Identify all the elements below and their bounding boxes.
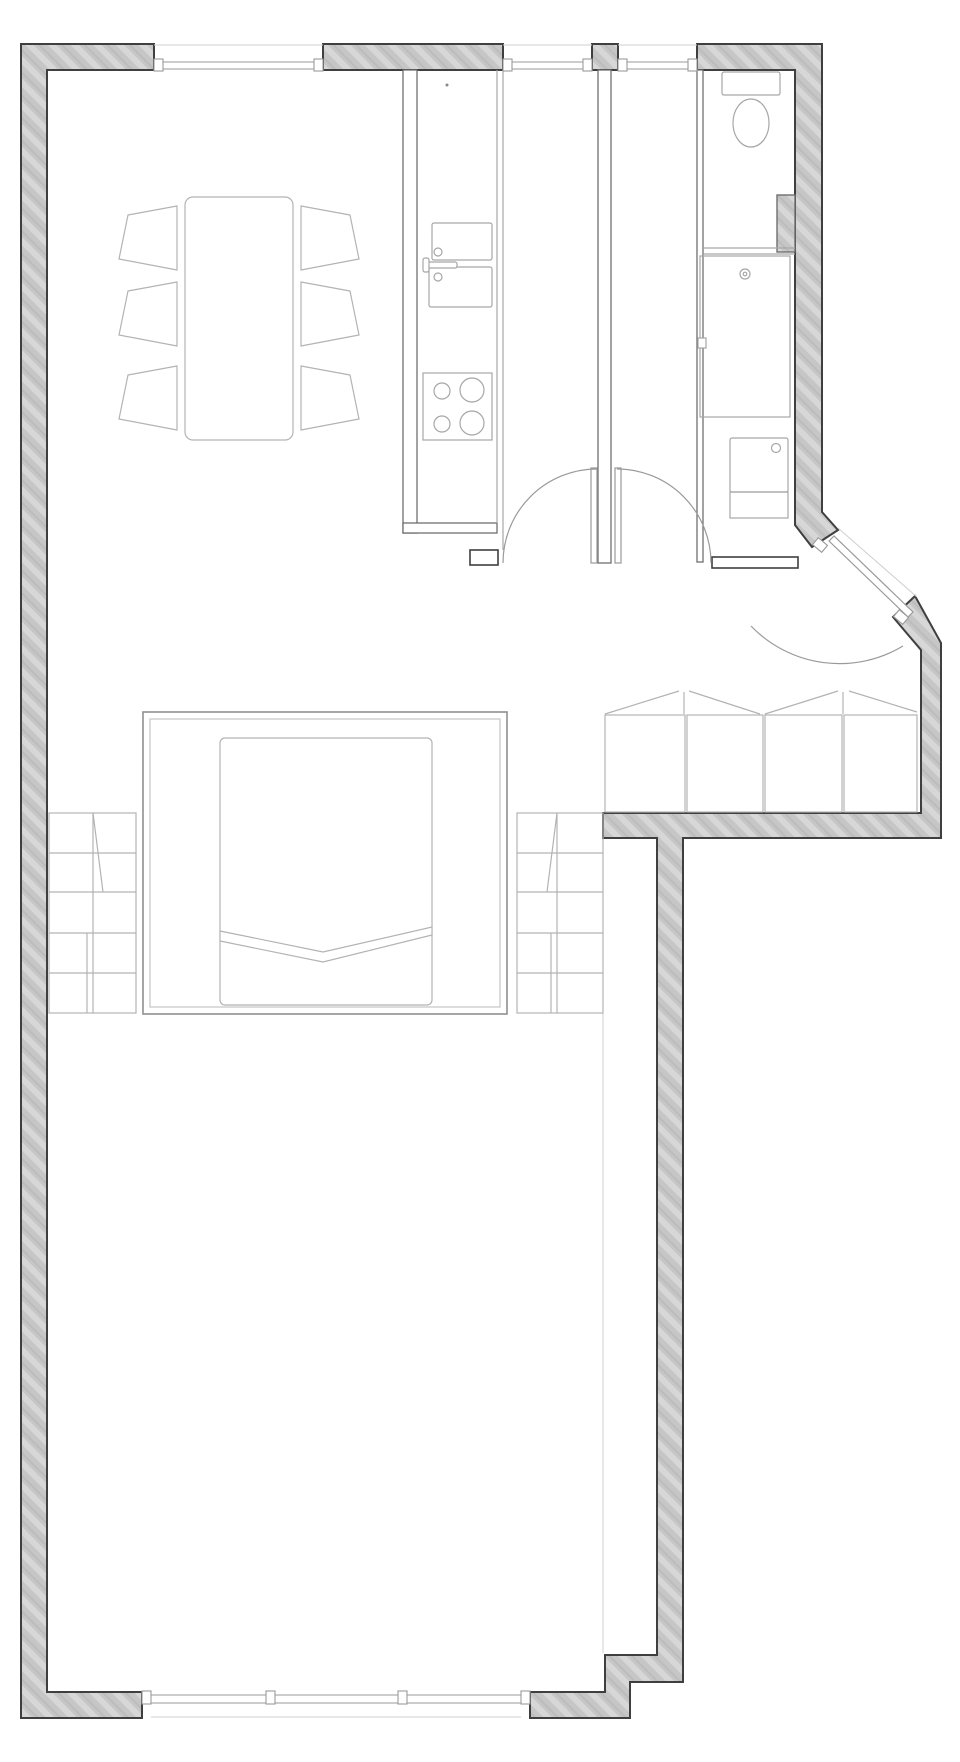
floor-plan-page	[0, 0, 960, 1762]
entry-door-arc	[751, 626, 903, 664]
faucet-handle	[425, 262, 457, 268]
bench-section	[765, 715, 842, 812]
dining-table	[185, 197, 293, 440]
bathroom	[698, 72, 795, 518]
window-top-left	[154, 59, 323, 71]
bench-section	[844, 715, 917, 812]
bench-cushions	[605, 691, 917, 714]
dining-chair	[301, 206, 359, 270]
wall-pier-top-middle	[323, 44, 503, 70]
kitchen-door-arc	[503, 469, 597, 563]
shower	[698, 256, 790, 417]
entry-door	[751, 528, 917, 664]
balcony-bench	[605, 691, 917, 812]
washing-machine	[730, 438, 788, 518]
bedroom	[49, 712, 603, 1014]
floor-plan-drawing	[0, 0, 960, 1762]
bathroom-duct	[777, 195, 795, 252]
dining-chair	[119, 206, 177, 270]
window-top-right	[618, 59, 697, 71]
kitchen-swing-door	[503, 468, 597, 563]
dining-chair	[301, 366, 359, 430]
wall-pier-top-small	[592, 44, 618, 70]
doors	[503, 468, 917, 664]
kitchen-door-leaf	[591, 468, 597, 563]
window-bottom	[142, 1691, 530, 1717]
kitchen-back-wall	[403, 70, 417, 533]
dining-chair	[301, 282, 359, 346]
central-partition	[598, 70, 611, 563]
wardrobe-left	[49, 813, 136, 1013]
wardrobe-right	[517, 813, 603, 1013]
wall-right-top	[697, 44, 838, 547]
reference-dot	[446, 84, 449, 87]
dining-set	[119, 197, 359, 440]
window-top-middle	[503, 59, 592, 71]
kitchen-door-jamb-stub	[470, 550, 498, 565]
kitchen-sink	[423, 223, 492, 307]
cooktop	[423, 373, 492, 440]
faucet-base	[423, 258, 429, 272]
bed-nook-frame-inner	[150, 719, 500, 1007]
bench-section	[605, 715, 685, 812]
entry-door-leaf	[829, 536, 913, 617]
blanket-fold	[220, 927, 432, 962]
bench-section	[687, 715, 763, 812]
windows	[142, 45, 697, 1717]
wall-left	[21, 44, 154, 1718]
bed-nook-frame-outer	[143, 712, 507, 1014]
shower-door-tick	[698, 338, 706, 348]
bathroom-south-stub	[712, 557, 798, 568]
double-bed-mattress	[220, 738, 432, 1005]
wall-right-lower	[530, 596, 941, 1718]
dining-chair	[119, 282, 177, 346]
kitchen-counter-bottom	[403, 523, 497, 533]
toilet	[722, 72, 780, 147]
dining-chair	[119, 366, 177, 430]
exterior-walls	[21, 44, 941, 1718]
kitchen	[423, 84, 492, 441]
bathroom-door-leaf	[615, 468, 621, 563]
